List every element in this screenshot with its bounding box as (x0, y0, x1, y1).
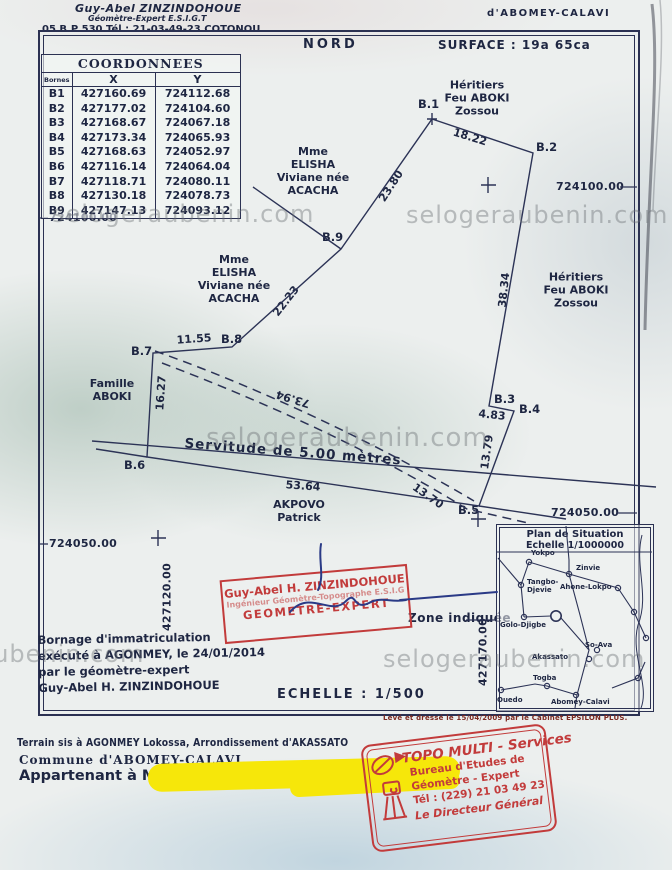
surface-label: SURFACE : 19a 65ca (438, 38, 591, 52)
place-ahone-lokpo: Ahone-Lokpo (560, 584, 612, 592)
north-label: NORD (303, 37, 358, 52)
table-row: B6427116.14724064.04 (42, 160, 241, 175)
table-row: B2427177.02724104.60 (42, 102, 241, 117)
surveyor-title: Géomètre-Expert E.S.I.G.T (88, 14, 206, 23)
situation-map: Plan de Situation Echelle 1/1000000 (496, 524, 654, 712)
watermark-text: selogeraubenin.com (383, 645, 645, 673)
owner-heritiers-aboki-right: Héritiers Feu ABOKI Zossou (543, 272, 608, 311)
watermark-text: selogeraubenin.com (0, 640, 144, 668)
measure-b7-b8: 11.55 (176, 331, 212, 346)
place-ouedo: Ouedo (497, 697, 523, 705)
place-tangbo-djevie: Tangbo- Djevie (527, 579, 558, 594)
col-header-x: X (72, 73, 155, 87)
watermark-text: selogeraubenin.com (406, 201, 668, 229)
measure-b6-b7: 16.27 (153, 375, 168, 411)
owner-elisha-2: Mme ELISHA Viviane née ACACHA (198, 254, 270, 306)
owner-elisha-1: Mme ELISHA Viviane née ACACHA (277, 146, 349, 198)
point-label-b7: B.7 (131, 344, 152, 358)
table-row: B1427160.69724112.68 (42, 87, 241, 102)
point-label-b1: B.1 (418, 97, 439, 111)
place-yokpo: Yokpo (531, 550, 555, 558)
place-togba: Togba (533, 675, 556, 683)
place-zinvie: Zinvie (576, 565, 600, 573)
grid-y-mid-left: 724050.00 (49, 537, 117, 550)
table-row: B3427168.67724067.18 (42, 116, 241, 131)
table-row: B5427168.63724052.97 (42, 145, 241, 160)
table-title: COORDONNEES (42, 55, 241, 73)
table-row: B4427173.34724065.93 (42, 131, 241, 146)
grid-y-mid-right: 724050.00 (551, 506, 619, 519)
coordinates-table: COORDONNEES Bornes X Y B1427160.69724112… (41, 54, 241, 219)
col-header-y: Y (155, 73, 240, 87)
commune-label: d'ABOMEY-CALAVI (487, 8, 610, 19)
place-golo-djigbe: Golo-Djigbe (500, 622, 546, 630)
owner-famille-aboki: Famille ABOKI (90, 378, 135, 404)
point-label-b4: B.4 (519, 402, 540, 416)
owner-akpovo: AKPOVO Patrick (273, 499, 325, 525)
situation-map-border (499, 527, 651, 709)
measure-b3-b4: 4.83 (478, 407, 506, 423)
scale-label: ECHELLE : 1/500 (277, 687, 426, 702)
point-label-b5: B.5 (458, 503, 479, 517)
watermark-text: selogeraubenin.com (206, 423, 489, 453)
watermark-text: selogeraubenin.com (52, 200, 314, 228)
scanned-survey-document: Guy-Abel ZINZINDOHOUE Géomètre-Expert E.… (0, 0, 672, 870)
topo-multi-stamp: TOPO MULTI - Services Bureau d'Etudes de… (360, 723, 558, 853)
owner-heritiers-aboki-top: Héritiers Feu ABOKI Zossou (444, 80, 509, 119)
grid-y-top-right: 724100.00 (556, 180, 624, 193)
table-row: B7427118.71724080.11 (42, 175, 241, 190)
point-label-b2: B.2 (536, 140, 557, 154)
point-label-b9: B.9 (322, 230, 343, 244)
grid-x-left: 427120.00 (161, 563, 174, 631)
survey-date-note: Levé et dressé le 15/04/2009 par le Cabi… (383, 714, 627, 722)
point-label-b8: B.8 (221, 332, 242, 346)
measure-b6-b5: 53.64 (285, 478, 321, 493)
point-label-b6: B.6 (124, 458, 145, 472)
point-label-b3: B.3 (494, 392, 515, 406)
col-header-bornes: Bornes (42, 73, 73, 87)
place-abomey-calavi: Abomey-Calavi (551, 699, 610, 707)
footer-terrain: Terrain sis à AGONMEY Lokossa, Arrondiss… (17, 737, 348, 749)
footer-owner: Appartenant à M (19, 768, 156, 784)
